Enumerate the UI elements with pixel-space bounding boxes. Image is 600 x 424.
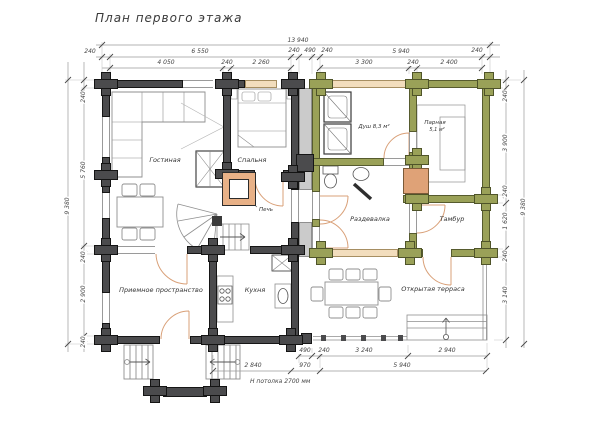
drawing-title: План первого этажа [95, 11, 243, 25]
wall [223, 88, 231, 170]
dimension-label: 3 240 [354, 348, 373, 354]
dimension-label: 240 [220, 60, 233, 66]
kitchen-sink [278, 289, 288, 304]
porch-rail [163, 387, 207, 397]
sofa [112, 92, 205, 177]
wall-post [101, 72, 111, 96]
window-beam [329, 249, 398, 257]
room-label-dressing: Раздевалка [350, 215, 390, 223]
dimension-label: 2 400 [439, 60, 458, 66]
dimension-label: 240 [81, 90, 87, 103]
dimension-label: 240 [503, 89, 509, 102]
wall-post [405, 241, 415, 265]
wall [312, 158, 384, 166]
room-label-vestibule: Тамбур [440, 215, 465, 223]
dimension-label: 240 [83, 49, 96, 55]
dimension-label: 1 620 [503, 211, 509, 230]
dimension-label: 490 [303, 48, 316, 54]
porch-post [210, 379, 220, 403]
stair-newel [212, 216, 222, 226]
doorway [312, 192, 320, 219]
dining-table [117, 197, 163, 227]
window [183, 80, 213, 88]
wall [110, 80, 183, 88]
wall-post [481, 187, 491, 211]
dimension-label: 240 [320, 48, 333, 54]
dimension-label: 2 840 [243, 363, 262, 369]
window-beam [245, 80, 277, 88]
wall-post [208, 328, 218, 352]
room-label-steam: Парная [424, 120, 445, 126]
wall-post [316, 72, 326, 96]
wall [238, 80, 245, 88]
stove [222, 172, 256, 206]
dimension-label: 13 940 [287, 38, 310, 44]
dimension-label: 5 760 [81, 160, 87, 179]
room-label-reception: Приемное пространство [119, 286, 203, 294]
room-label-kitchen: Кухня [245, 286, 265, 294]
plan-linework [0, 0, 600, 424]
wall-post [316, 241, 326, 265]
dimension-label: 5 940 [392, 363, 411, 369]
dimension-label: 970 [298, 363, 311, 369]
dimension-label: 240 [470, 48, 483, 54]
room-label-bedroom: Спальня [238, 156, 267, 164]
floor-plan-canvas: План первого этажа [0, 0, 600, 424]
dimension-label: 6 550 [190, 49, 209, 55]
bed [238, 89, 286, 147]
dimension-label: 5 940 [391, 49, 410, 55]
kitchen-counter [217, 276, 233, 322]
shower-trays [324, 92, 351, 154]
toilet [323, 166, 338, 174]
washbasin [353, 168, 369, 181]
dimension-label: 240 [317, 348, 330, 354]
dimension-label: 240 [406, 60, 419, 66]
dimension-label: 240 [81, 250, 87, 263]
room-label-living: Гостиная [149, 156, 180, 164]
dimension-label: 2 260 [251, 60, 270, 66]
wall-post [296, 154, 314, 172]
wall [425, 80, 481, 88]
room-label-steam-area: 5,1 м² [429, 127, 444, 133]
dimension-label: 9 380 [521, 197, 527, 216]
wall-post [412, 72, 422, 96]
wall [312, 219, 320, 227]
wall-post [288, 165, 298, 189]
sauna-heater [403, 168, 429, 194]
window-beam [329, 80, 409, 88]
dimension-label: 240 [287, 48, 300, 54]
wall [209, 254, 217, 336]
wall-post [286, 328, 296, 352]
dimension-label: 2 940 [437, 348, 456, 354]
dimension-label: 490 [298, 348, 311, 354]
terrace-steps [313, 257, 487, 340]
porch-post [150, 379, 160, 403]
wall-post [484, 72, 494, 96]
angled-partition [354, 184, 371, 199]
cooktop [218, 286, 232, 304]
wall [312, 88, 320, 192]
doorway [291, 190, 299, 222]
dimension-label: 240 [503, 184, 509, 197]
dimension-label: 240 [81, 335, 87, 348]
dimension-label: 3 900 [503, 133, 509, 152]
dimension-label: 3 300 [354, 60, 373, 66]
wall-post [222, 72, 232, 96]
dimension-label: 4 050 [156, 60, 175, 66]
wall-post [101, 163, 111, 187]
room-label-stove: Печь [259, 207, 273, 213]
porch-steps [124, 345, 240, 379]
room-label-shower: Душ 8,3 м² [358, 124, 389, 130]
wall-post [101, 238, 111, 262]
window [102, 117, 110, 157]
room-label-terrace: Открытая терраса [401, 285, 464, 293]
wall-post [208, 238, 218, 262]
dimension-label: 3 140 [503, 285, 509, 304]
window [102, 193, 110, 218]
wall-post [101, 328, 111, 352]
wall [482, 88, 490, 257]
terrace-railing-posts [321, 335, 403, 341]
window [102, 293, 110, 323]
dimension-label: 9 380 [65, 196, 71, 215]
wall-post [481, 241, 491, 265]
dimension-label: 2 900 [81, 284, 87, 303]
dimension-label: 240 [503, 249, 509, 262]
wall-post [288, 72, 298, 96]
terrace-table [325, 282, 378, 305]
wall-post [288, 238, 298, 262]
ceiling-height-note: Н потолка 2700 мм [250, 378, 310, 385]
